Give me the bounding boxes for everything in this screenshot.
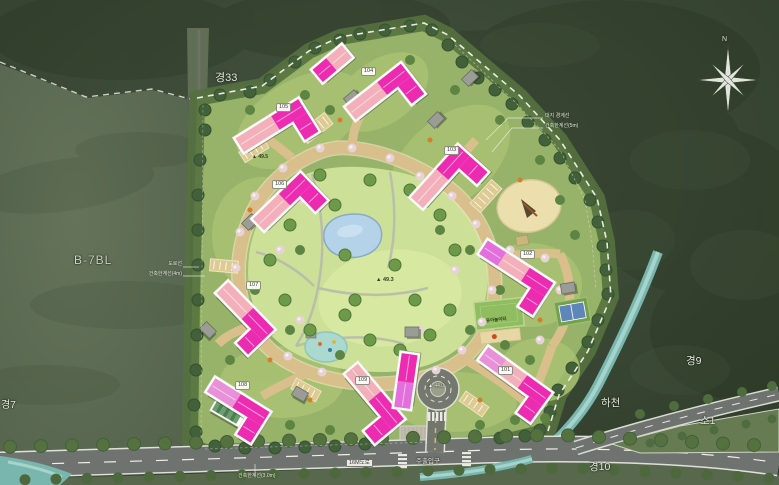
road-label-gyeong7: 경7 <box>1 400 16 411</box>
road-width-label: 16M도로 <box>346 459 373 467</box>
stream-label: 하천 <box>601 398 620 410</box>
island-label-so1: 소1 <box>700 416 716 428</box>
elevation-upper: ▲ 49.5 <box>252 155 268 161</box>
building-tag-105: 105 <box>276 103 291 112</box>
site-plan: 경33 B-7BL 경7 경9 하천 소1 경10 주출입구 16M도로 N 대… <box>0 0 779 485</box>
building-tag-102: 102 <box>520 250 535 259</box>
building-tag-109: 109 <box>355 376 370 385</box>
elevation-park: ▲ 49.3 <box>376 277 394 283</box>
compass-north-label: N <box>722 36 727 44</box>
road-label-gyeong10: 경10 <box>589 462 610 474</box>
block-label-b7bl: B-7BL <box>74 254 112 267</box>
building-tag-104: 104 <box>361 67 376 76</box>
building-tag-106: 106 <box>272 180 287 189</box>
sports-court <box>554 297 591 326</box>
annotation-road-line: 도로선 <box>142 262 182 268</box>
building-tag-108: 108 <box>235 381 250 390</box>
road-label-gyeong33: 경33 <box>215 72 237 84</box>
annotation-limit-3m: 건축한계선(3.0m) <box>238 474 275 480</box>
building-tag-107: 107 <box>246 281 261 290</box>
building-tag-103: 103 <box>444 146 459 155</box>
elevation-roundabout: ▲ 44.0 <box>428 384 444 390</box>
road-label-gyeong9: 경9 <box>686 356 702 368</box>
annotation-limit-5m: 건축한계선(5m) <box>545 124 578 130</box>
main-entrance-label: 주출입구 <box>416 458 440 465</box>
annotation-site-boundary: 대지 경계선 <box>545 114 569 120</box>
site-plan-svg <box>0 0 779 485</box>
annotation-limit-4m: 건축한계선(4m) <box>122 272 182 278</box>
building-tag-101: 101 <box>498 366 513 375</box>
